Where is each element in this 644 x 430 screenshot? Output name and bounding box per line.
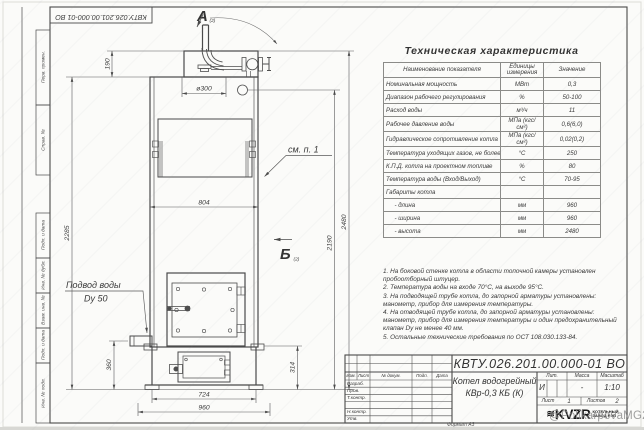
dim-base-inner-width: 724 bbox=[198, 392, 210, 399]
spec-row: Номинальная мощностьМВт0,3 bbox=[384, 78, 601, 91]
inlet-label-line2: Dy 50 bbox=[84, 294, 108, 304]
col-header-podp: Подп. bbox=[412, 374, 432, 378]
doc-number: КВТУ.026.201.00.000-01 ВО bbox=[452, 356, 627, 372]
top-stamp-text: КВТУ.026.201.00.000-01 ВО bbox=[55, 13, 147, 22]
col-header-docnum: № докум. bbox=[370, 374, 412, 378]
row-label-utv: Утв. bbox=[347, 417, 377, 422]
note-item: 5. Остальные технические требования по О… bbox=[383, 334, 626, 342]
spec-header: Наименование показателя bbox=[384, 63, 501, 78]
note-item: 1. На боковой стенке котла в области топ… bbox=[383, 268, 626, 284]
lit-value: И bbox=[537, 384, 547, 392]
note-item: 4. На отводящей трубе котла, до запорной… bbox=[383, 309, 626, 333]
sheets-value: 2 bbox=[609, 399, 625, 405]
border-field-labels: Перв. примен. Справ. № Подп. и дата Инв.… bbox=[41, 51, 47, 408]
dim-body-height: 2285 bbox=[64, 225, 71, 241]
border-field-label: Инв. № подл. bbox=[41, 378, 47, 408]
border-field-label: Перв. примен. bbox=[41, 51, 47, 83]
spec-header: Единицы измерения bbox=[501, 63, 544, 78]
author-watermark: @PolikarpovaMG2021 bbox=[549, 410, 644, 422]
drawing-sheet: КВТУ.026.201.00.000-01 ВО Перв. примен. … bbox=[0, 0, 644, 430]
row-label-nkontr: Н.контр. bbox=[347, 410, 377, 415]
dim-base-width: 960 bbox=[198, 405, 210, 412]
callout-see-note: см. п. 1 bbox=[288, 145, 319, 155]
boiler-details bbox=[153, 48, 272, 375]
spec-table-title: Техническая характеристика bbox=[383, 45, 600, 57]
technical-notes: 1. На боковой стенке котла в области топ… bbox=[383, 268, 626, 342]
spec-header: Значение bbox=[544, 63, 601, 78]
product-name-line2: КВр-0,3 КБ (К) bbox=[452, 389, 537, 398]
sheets-label: Листов bbox=[583, 399, 609, 404]
col-header-izm: Изм. bbox=[345, 374, 357, 378]
note-item: 3. На подводящей трубе котла, до запорно… bbox=[383, 293, 626, 309]
row-label-prov: Пров. bbox=[347, 389, 377, 394]
row-label-tkontr: Т.контр. bbox=[347, 396, 377, 401]
callout-leader bbox=[265, 156, 333, 177]
sheet-value: 1 bbox=[559, 399, 579, 405]
note-item: 2. Температура воды на входе 70°С, на вы… bbox=[383, 284, 626, 292]
col-header-data: Дата bbox=[432, 374, 452, 378]
view-a-ref: (2) bbox=[210, 18, 216, 24]
mass-header: Масса bbox=[567, 374, 597, 379]
spec-row: Гидравлическое сопротивление котлаМПа (к… bbox=[384, 132, 601, 147]
spec-row: - длинамм960 bbox=[384, 199, 601, 212]
spec-row: Расход водым³/ч11 bbox=[384, 104, 601, 117]
row-label-razrab: Разраб. bbox=[347, 382, 377, 387]
spec-row: К.П.Д. котла на проектном топливе%80 bbox=[384, 160, 601, 173]
inlet-label-line1: Подвод воды bbox=[66, 280, 121, 290]
spec-row: Температура воды (Вход/Выход)°С70-95 bbox=[384, 173, 601, 186]
spec-table: Наименование показателя Единицы измерени… bbox=[383, 62, 601, 238]
border-field-label: Инв. № дубл. bbox=[41, 260, 47, 290]
mass-value: - bbox=[567, 384, 597, 392]
top-stamp: КВТУ.026.201.00.000-01 ВО bbox=[50, 7, 152, 23]
sheet-label: Лист bbox=[537, 399, 559, 404]
col-header-list: Лист bbox=[357, 374, 370, 378]
spec-row: Рабочее давление водыМПа (кгс/см²)0,6(6,… bbox=[384, 117, 601, 132]
scale-value: 1:10 bbox=[597, 384, 627, 392]
spec-row: Температура уходящих газов, не более°С25… bbox=[384, 147, 601, 160]
view-a-arc bbox=[210, 18, 277, 44]
spec-row: - высотамм2480 bbox=[384, 225, 601, 238]
spec-row: Габариты котла bbox=[384, 186, 601, 199]
dim-body-width: 804 bbox=[198, 200, 210, 207]
border-field-label: Взам. инв. № bbox=[41, 295, 47, 325]
dim-inlet-height: 360 bbox=[106, 359, 113, 371]
spec-row: Диапазон рабочего регулирования%50-100 bbox=[384, 91, 601, 104]
border-field-label: Справ. № bbox=[41, 129, 47, 151]
dim-fitting-height: 2190 bbox=[327, 235, 334, 251]
dim-cap-height: 190 bbox=[105, 58, 112, 70]
product-name-line1: Котел водогрейный bbox=[452, 377, 537, 386]
dim-base-height: 314 bbox=[290, 362, 297, 374]
dimension-texts: 190 ø300 804 2285 360 314 2190 2480 724 … bbox=[64, 58, 348, 411]
lit-header: Лит. bbox=[537, 374, 567, 379]
dim-total-height: 2480 bbox=[341, 214, 348, 230]
view-b-label: Б bbox=[280, 246, 291, 263]
border-field-label: Подп. и дата bbox=[41, 330, 47, 360]
view-labels: А (2) Б (2) см. п. 1 Подвод воды Dy 50 bbox=[65, 8, 332, 333]
spec-row: - ширинамм960 bbox=[384, 212, 601, 225]
border-field-label: Подп. и дата bbox=[41, 220, 47, 250]
view-b-ref: (2) bbox=[294, 257, 300, 263]
dim-flue-diameter: ø300 bbox=[196, 86, 212, 93]
scale-header: Масштаб bbox=[597, 374, 627, 379]
spec-header-row: Наименование показателя Единицы измерени… bbox=[384, 63, 601, 78]
